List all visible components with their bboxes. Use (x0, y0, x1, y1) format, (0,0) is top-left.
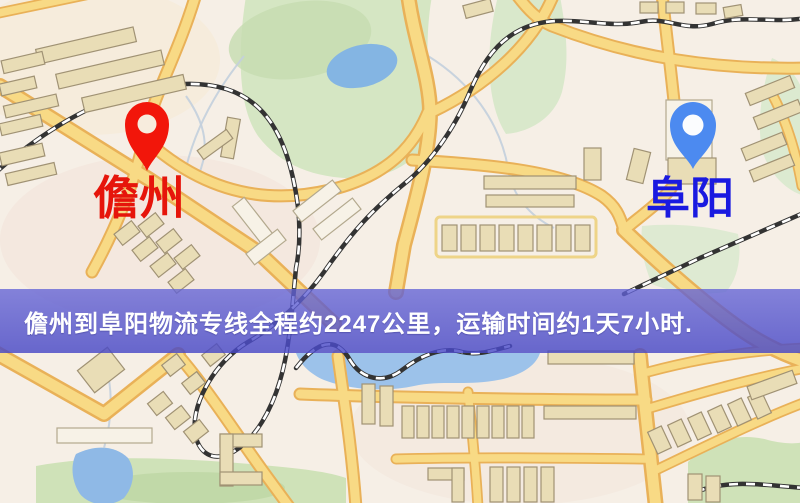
map-view: 儋州 阜阳 儋州到阜阳物流专线全程约2247公里，运输时间约1天7小时. (0, 0, 800, 503)
route-info-banner: 儋州到阜阳物流专线全程约2247公里，运输时间约1天7小时. (0, 289, 800, 353)
route-info-text: 儋州到阜阳物流专线全程约2247公里，运输时间约1天7小时. (24, 304, 693, 339)
pond (73, 448, 133, 503)
map-image: 儋州 阜阳 (0, 0, 800, 503)
destination-label: 阜阳 (646, 174, 734, 223)
origin-label: 儋州 (93, 172, 185, 224)
